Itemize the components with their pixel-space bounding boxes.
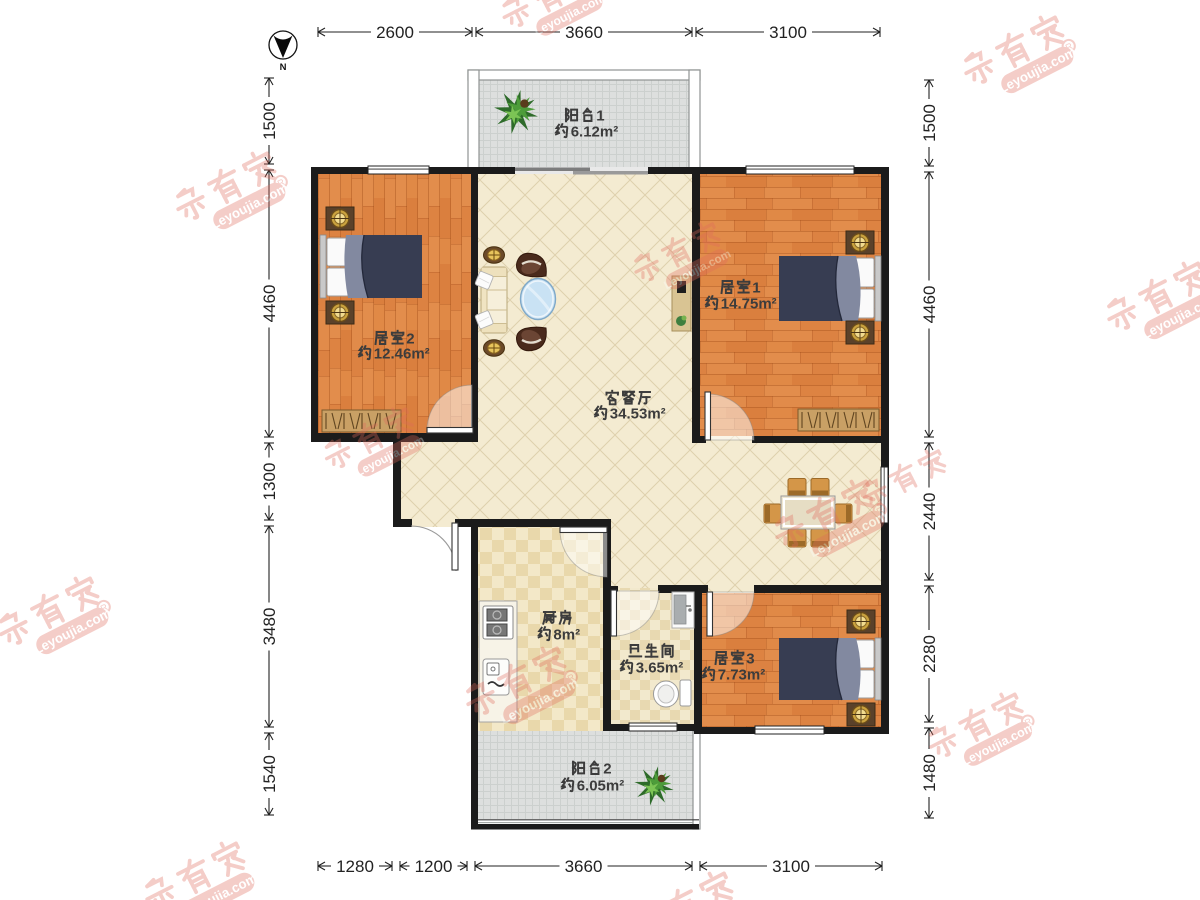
svg-text:Leyoujia.com: Leyoujia.com [532,0,608,39]
